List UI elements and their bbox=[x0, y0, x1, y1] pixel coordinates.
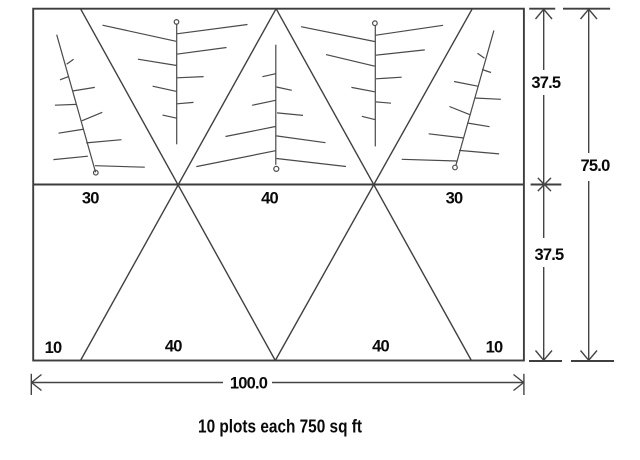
svg-text:75.0: 75.0 bbox=[581, 157, 611, 175]
svg-text:40: 40 bbox=[372, 338, 389, 356]
svg-text:37.5: 37.5 bbox=[531, 74, 561, 92]
svg-text:30: 30 bbox=[82, 189, 99, 207]
svg-text:100.0: 100.0 bbox=[230, 374, 268, 392]
svg-text:10 plots each 750 sq ft: 10 plots each 750 sq ft bbox=[198, 416, 362, 437]
svg-text:30: 30 bbox=[446, 189, 463, 207]
svg-text:40: 40 bbox=[165, 338, 182, 356]
svg-text:40: 40 bbox=[261, 189, 278, 207]
svg-text:10: 10 bbox=[45, 339, 62, 357]
svg-text:10: 10 bbox=[486, 339, 503, 357]
svg-text:37.5: 37.5 bbox=[534, 246, 564, 264]
